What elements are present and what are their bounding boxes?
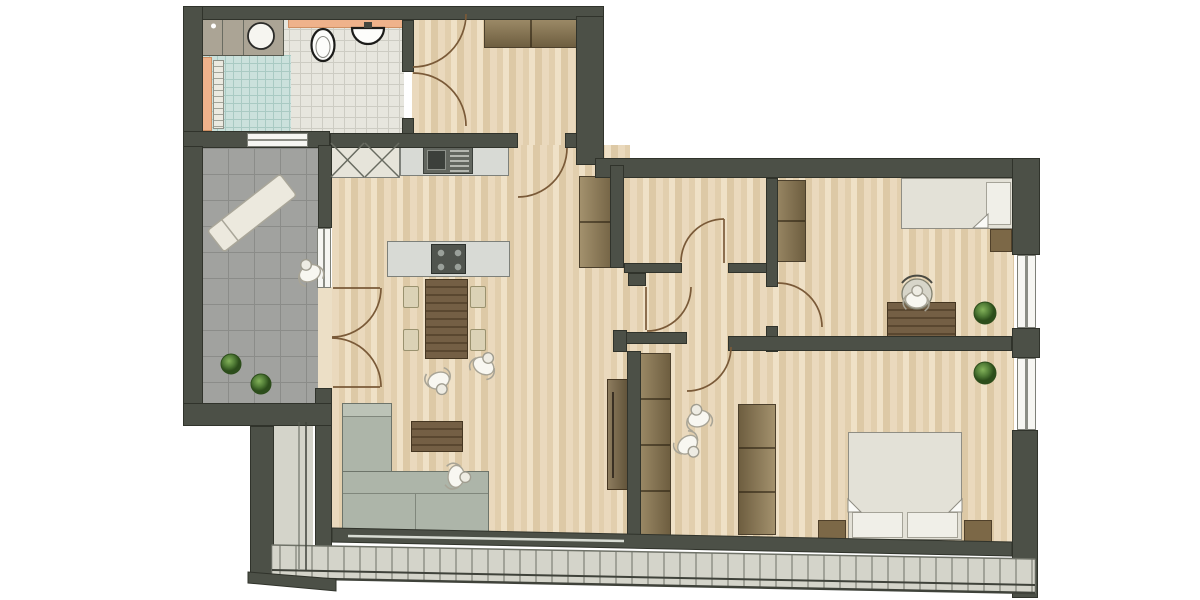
balcony-left-strip — [274, 420, 313, 568]
wall-corridor-south-b — [728, 336, 1012, 351]
wall-bath-east-b — [402, 118, 414, 134]
cooktop — [431, 244, 466, 274]
wall-living-east — [627, 351, 641, 545]
kitchen-sink-basin — [427, 150, 446, 170]
wall-terrace-south — [183, 403, 332, 426]
wall-midroom-south-a — [624, 263, 682, 273]
wall-left-upper — [183, 6, 203, 148]
wall-kitchen-north — [330, 133, 518, 148]
desk — [887, 302, 956, 338]
wall-bedroom1-west — [766, 178, 778, 287]
terrace-window — [317, 228, 331, 288]
wall-wing-north — [595, 158, 1040, 178]
wall-corridor-south-a — [624, 332, 687, 344]
washer-counter — [201, 17, 284, 56]
wall-outer-left-low — [250, 426, 274, 575]
dining-chair — [403, 286, 419, 308]
terrace-floor — [202, 146, 320, 426]
south-glass-door — [348, 536, 624, 541]
dining-chair — [470, 286, 486, 308]
coffee-table — [411, 421, 463, 452]
floor-plan — [0, 0, 1200, 600]
bed-foot-table — [990, 229, 1012, 252]
wall-east-a — [1012, 158, 1040, 255]
wall-top — [183, 6, 604, 20]
double-bed-pillow — [907, 512, 958, 538]
dining-chair — [403, 329, 419, 351]
closet-wardrobe-east — [738, 404, 776, 535]
nightstand-left — [818, 520, 846, 545]
single-bed-pillow — [986, 182, 1011, 225]
dining-table — [425, 279, 468, 359]
wall-living-west-a — [318, 145, 332, 228]
wall-niche-east — [610, 165, 624, 268]
east-window-2 — [1017, 358, 1036, 430]
railing-base — [272, 578, 1035, 593]
wall-terrace-west — [183, 146, 203, 426]
double-bed-pillow — [852, 512, 903, 538]
wall-hall-east — [576, 16, 604, 165]
bathroom-window — [247, 133, 308, 147]
dining-chair — [470, 329, 486, 351]
wall-east-b — [1012, 430, 1038, 598]
french-door-threshold — [318, 287, 332, 388]
counter-divider — [222, 18, 223, 55]
wall-bath-east-a — [402, 20, 414, 72]
railing-rail — [272, 570, 1035, 585]
east-window-1 — [1017, 255, 1036, 328]
sofa-cushion-line — [415, 494, 416, 533]
wall-midroom-south-b — [728, 263, 768, 273]
nightstand-right — [964, 520, 992, 545]
wall-stub-a1 — [628, 273, 646, 286]
counter-divider — [243, 18, 244, 55]
sideboard-handle — [612, 392, 614, 478]
balcony-edge-top — [272, 545, 1035, 559]
sofa-armrest — [343, 404, 391, 417]
sofa-seat — [342, 471, 489, 532]
shower-tile-strip — [213, 60, 224, 129]
wall-east-pier — [1012, 328, 1040, 358]
wall-corner-w12 — [613, 330, 627, 352]
